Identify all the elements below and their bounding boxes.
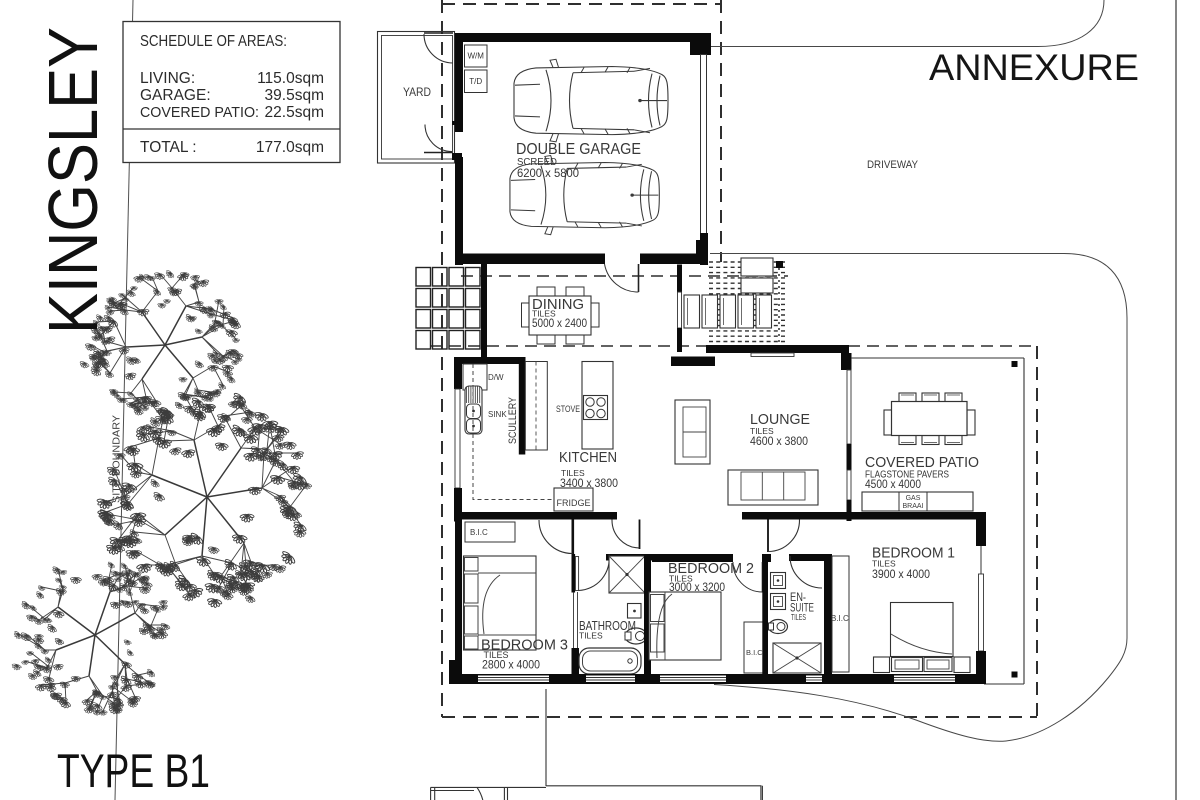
svg-text:STOVE: STOVE <box>556 404 580 414</box>
svg-text:TYPE B1: TYPE B1 <box>57 744 210 797</box>
svg-text:KINGSLEY: KINGSLEY <box>34 27 112 334</box>
svg-text:B.I.C: B.I.C <box>831 614 849 623</box>
svg-text:SINK: SINK <box>488 410 507 419</box>
svg-text:KITCHEN: KITCHEN <box>559 449 617 466</box>
svg-text:TILES: TILES <box>791 612 806 622</box>
svg-text:T/D: T/D <box>469 77 482 86</box>
svg-text:COVERED PATIO:: COVERED PATIO: <box>140 104 259 121</box>
svg-text:GAS: GAS <box>906 495 921 502</box>
svg-text:W/M: W/M <box>467 52 484 61</box>
svg-text:COVERED PATIO: COVERED PATIO <box>865 454 979 471</box>
svg-text:TILES: TILES <box>579 631 603 641</box>
svg-text:115.0sqm: 115.0sqm <box>257 70 324 87</box>
svg-text:39.5sqm: 39.5sqm <box>265 87 324 104</box>
svg-text:TILES: TILES <box>750 426 774 436</box>
svg-text:TILES: TILES <box>532 309 556 319</box>
svg-text:177.0sqm: 177.0sqm <box>256 139 324 156</box>
svg-text:4500 x 4000: 4500 x 4000 <box>865 479 921 491</box>
svg-text:DRIVEWAY: DRIVEWAY <box>867 159 919 171</box>
svg-text:GARAGE:: GARAGE: <box>140 87 211 104</box>
svg-text:FRIDGE: FRIDGE <box>557 498 591 508</box>
svg-text:D/W: D/W <box>488 373 504 382</box>
svg-text:6200 x 5800: 6200 x 5800 <box>517 166 579 180</box>
svg-text:3900 x 4000: 3900 x 4000 <box>872 567 930 581</box>
svg-text:4600 x 3800: 4600 x 3800 <box>750 436 808 448</box>
svg-text:3000 x 3200: 3000 x 3200 <box>669 582 725 594</box>
svg-text:2800 x 4000: 2800 x 4000 <box>482 659 540 671</box>
svg-text:B.I.C: B.I.C <box>746 648 763 657</box>
svg-text:ANNEXURE: ANNEXURE <box>929 47 1139 88</box>
svg-text:3400 x 3800: 3400 x 3800 <box>560 478 618 490</box>
svg-text:BRAAI: BRAAI <box>902 503 923 510</box>
svg-text:5000 x 2400: 5000 x 2400 <box>532 318 587 330</box>
svg-text:SCHEDULE OF AREAS:: SCHEDULE OF AREAS: <box>140 33 287 50</box>
svg-text:YARD: YARD <box>403 87 431 99</box>
svg-text:SITE BOUNDARY: SITE BOUNDARY <box>111 415 123 503</box>
svg-text:22.5sqm: 22.5sqm <box>265 104 324 121</box>
svg-text:TILES: TILES <box>561 468 585 478</box>
svg-text:TOTAL :: TOTAL : <box>140 139 197 156</box>
svg-text:SCULLERY: SCULLERY <box>507 396 519 444</box>
svg-text:DOUBLE GARAGE: DOUBLE GARAGE <box>516 141 641 158</box>
svg-text:B.I.C: B.I.C <box>470 528 488 537</box>
svg-text:LIVING:: LIVING: <box>140 70 195 87</box>
